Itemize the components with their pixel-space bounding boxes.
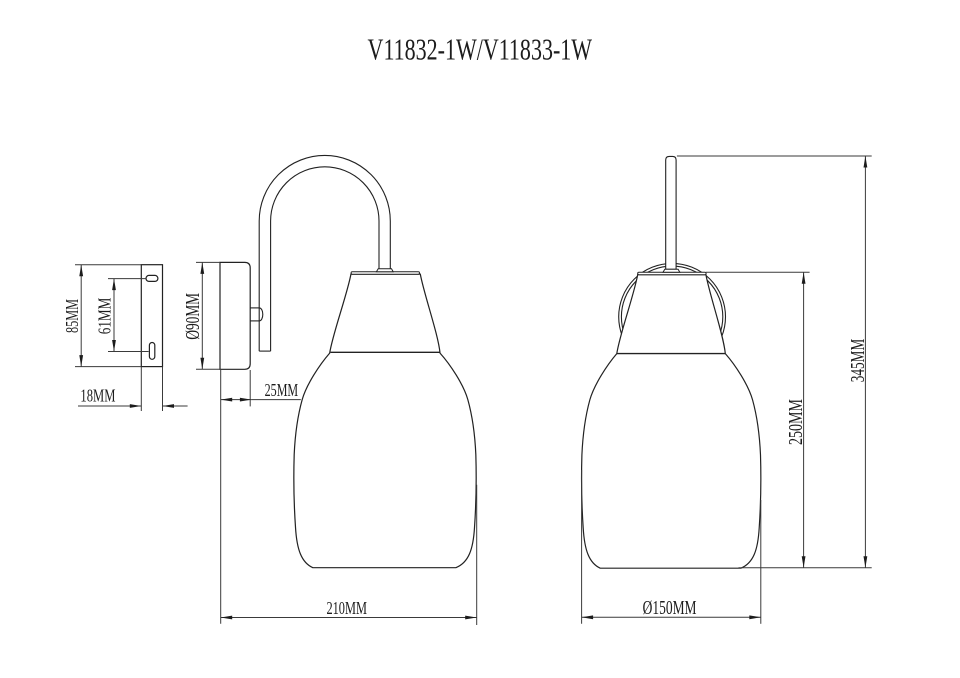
svg-text:Ø150MM: Ø150MM bbox=[643, 598, 697, 619]
svg-text:18MM: 18MM bbox=[80, 385, 115, 405]
svg-text:345MM: 345MM bbox=[848, 339, 869, 383]
svg-text:Ø90MM: Ø90MM bbox=[183, 293, 204, 340]
svg-text:250MM: 250MM bbox=[786, 399, 807, 445]
svg-text:210MM: 210MM bbox=[326, 598, 367, 618]
svg-text:85MM: 85MM bbox=[62, 299, 82, 333]
svg-text:25MM: 25MM bbox=[265, 380, 299, 400]
svg-text:V11832-1W/V11833-1W: V11832-1W/V11833-1W bbox=[368, 33, 593, 67]
svg-text:61MM: 61MM bbox=[95, 298, 115, 335]
